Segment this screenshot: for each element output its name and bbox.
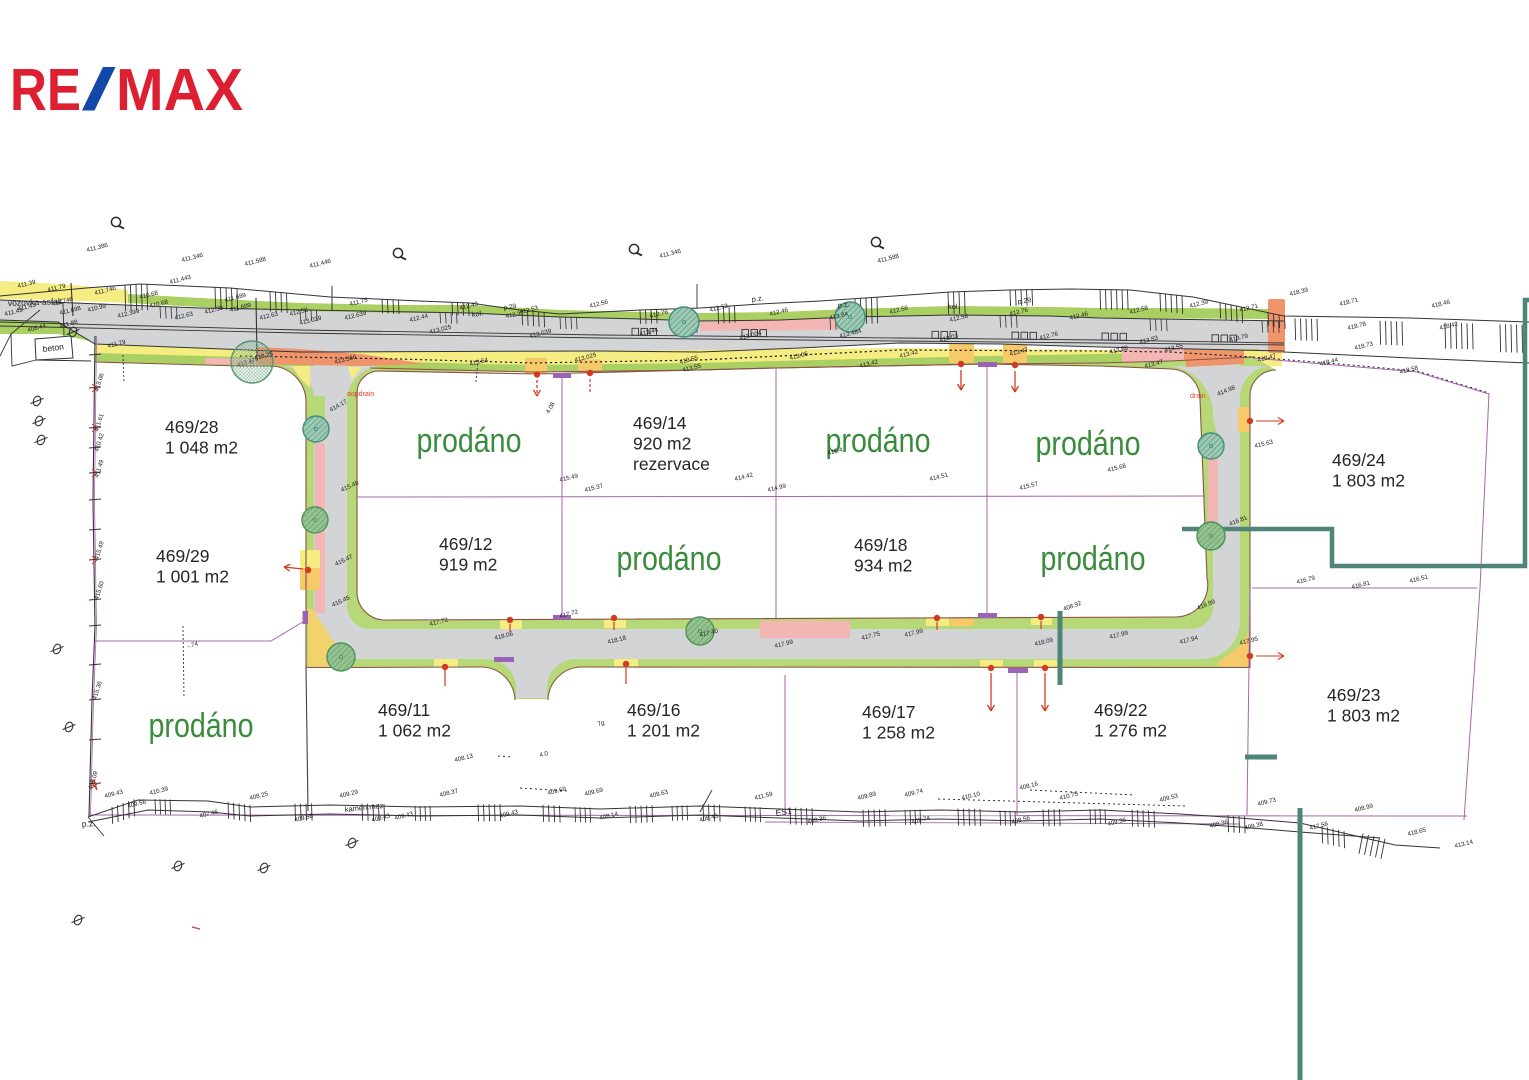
svg-text:934 m2: 934 m2	[854, 556, 912, 576]
svg-text:919 m2: 919 m2	[439, 555, 497, 575]
svg-text:1 048 m2: 1 048 m2	[165, 438, 238, 458]
svg-text:1 062 m2: 1 062 m2	[378, 721, 451, 741]
svg-text:rezervace: rezervace	[633, 454, 710, 474]
svg-text:469/18: 469/18	[854, 535, 908, 555]
svg-text:aopdrain: aopdrain	[347, 391, 374, 398]
svg-text:469/23: 469/23	[1327, 685, 1381, 705]
svg-text:1 258 m2: 1 258 m2	[862, 723, 935, 743]
svg-text:469/29: 469/29	[156, 546, 210, 566]
svg-text:1 001 m2: 1 001 m2	[156, 567, 229, 587]
svg-text:prodáno: prodáno	[417, 422, 522, 460]
svg-text:prodáno: prodáno	[826, 422, 931, 460]
svg-text:469/11: 469/11	[378, 700, 430, 720]
svg-text:1 276 m2: 1 276 m2	[1094, 721, 1167, 741]
svg-text:prodáno: prodáno	[1041, 540, 1146, 578]
svg-text:1 803 m2: 1 803 m2	[1327, 706, 1400, 726]
svg-text:prodáno: prodáno	[149, 707, 254, 745]
svg-text:1 803 m2: 1 803 m2	[1332, 471, 1405, 491]
svg-text:1 201 m2: 1 201 m2	[627, 721, 700, 741]
svg-text:469/12: 469/12	[439, 534, 493, 554]
svg-text:469/22: 469/22	[1094, 700, 1148, 720]
svg-text:920 m2: 920 m2	[633, 434, 691, 454]
svg-text:469/14: 469/14	[633, 413, 687, 433]
svg-text:469/17: 469/17	[862, 702, 916, 722]
svg-text:469/24: 469/24	[1332, 450, 1386, 470]
svg-text:prodáno: prodáno	[1036, 425, 1141, 463]
svg-text:p.z.: p.z.	[751, 293, 764, 304]
svg-text:469/28: 469/28	[165, 417, 219, 437]
svg-text:MAX: MAX	[116, 57, 243, 123]
svg-text:drain: drain	[1190, 393, 1206, 400]
svg-text:RE: RE	[10, 57, 81, 123]
svg-text:kol.: kol.	[471, 308, 484, 319]
svg-text:p.z.: p.z.	[81, 818, 95, 829]
svg-text:kol.: kol.	[948, 302, 960, 311]
svg-text:prodáno: prodáno	[617, 540, 722, 578]
svg-text:469/16: 469/16	[627, 700, 681, 720]
svg-text:p.z.: p.z.	[837, 299, 850, 310]
